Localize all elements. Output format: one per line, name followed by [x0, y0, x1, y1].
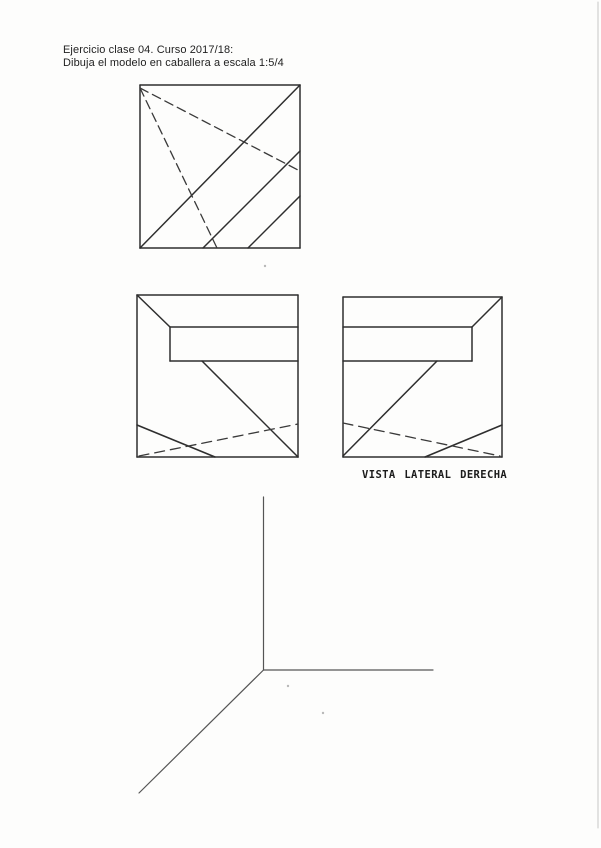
technical-drawing	[0, 0, 601, 848]
exercise-title: Ejercicio clase 04. Curso 2017/18:	[63, 44, 284, 57]
plan-view-visible-edges	[140, 85, 300, 248]
scanned-worksheet: Ejercicio clase 04. Curso 2017/18: Dibuj…	[0, 0, 601, 848]
exercise-header: Ejercicio clase 04. Curso 2017/18: Dibuj…	[63, 44, 284, 70]
side-view-label: VISTA LATERAL DERECHA	[362, 469, 507, 481]
exercise-instruction: Dibuja el modelo en caballera a escala 1…	[63, 57, 284, 70]
side-view-visible-edges	[343, 297, 502, 457]
side-view-hidden-edges	[343, 423, 500, 456]
scan-speck	[322, 712, 324, 714]
front-view-visible-edges	[137, 295, 298, 457]
front-view-hidden-edges	[139, 424, 298, 456]
caballera-axes	[139, 497, 433, 793]
scan-speck	[264, 265, 266, 267]
scan-speck	[287, 685, 289, 687]
